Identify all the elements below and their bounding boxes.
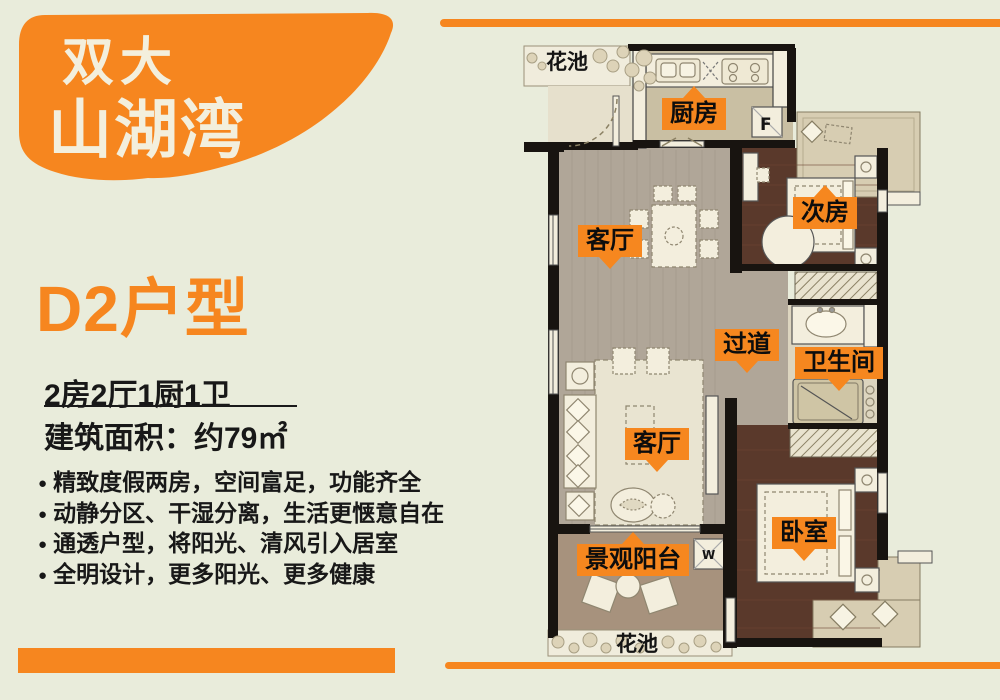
room-label-living-room: 客厅 [625, 428, 689, 460]
fridge-mark: F [760, 115, 772, 135]
poster: 双大 山湖湾 D2户型 2房2厅1厨1卫 建筑面积：约79㎡ ●精致度假两房，空… [0, 0, 1000, 700]
room-label-living-dining: 客厅 [578, 225, 642, 257]
room-label-bathroom: 卫生间 [795, 347, 883, 379]
room-label-corridor: 过道 [715, 329, 779, 361]
room-label-second-bedroom: 次房 [793, 197, 857, 229]
room-label-master-bedroom: 卧室 [772, 517, 836, 549]
room-label-kitchen: 厨房 [662, 98, 726, 130]
washer-mark: W [702, 548, 715, 562]
flower-bed-bottom-label: 花池 [616, 632, 658, 656]
flower-bed-top-label: 花池 [546, 50, 588, 74]
room-label-balcony: 景观阳台 [577, 544, 689, 576]
